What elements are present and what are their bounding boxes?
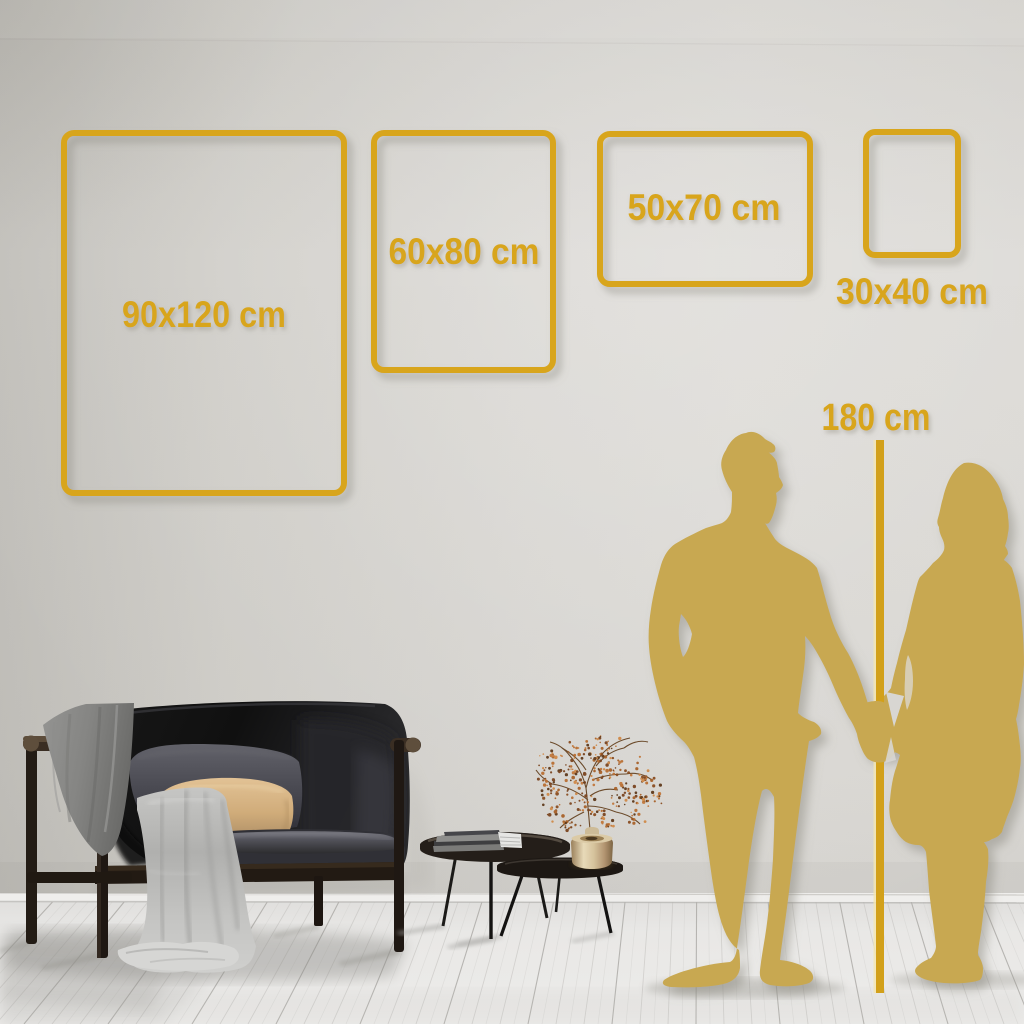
svg-text:180 cm: 180 cm [822,397,931,439]
svg-text:30x40 cm: 30x40 cm [836,271,988,312]
svg-text:90x120 cm: 90x120 cm [122,294,286,335]
svg-text:60x80 cm: 60x80 cm [389,231,540,272]
svg-text:50x70 cm: 50x70 cm [628,187,781,228]
